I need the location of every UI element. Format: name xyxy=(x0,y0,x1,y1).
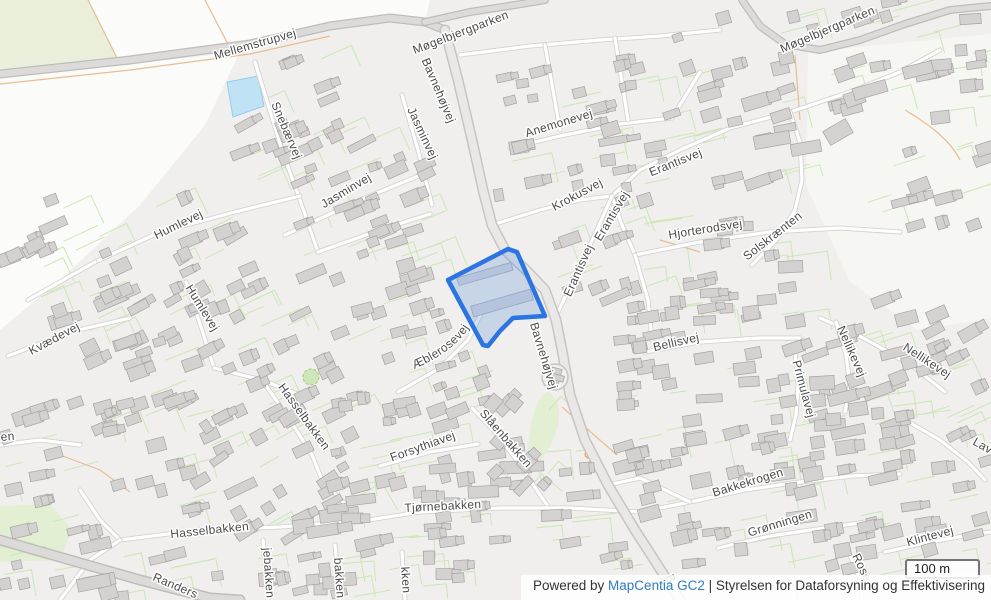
powered-by-text: Powered by xyxy=(533,578,608,593)
building xyxy=(785,314,806,329)
building xyxy=(468,485,499,498)
street-label: bakken xyxy=(331,557,348,598)
building xyxy=(734,542,748,556)
building xyxy=(833,542,851,558)
building xyxy=(771,414,783,424)
building xyxy=(745,346,762,360)
scale-bar-label: 100 m xyxy=(914,561,950,576)
building xyxy=(930,110,950,125)
building xyxy=(211,570,223,581)
building xyxy=(600,154,616,167)
building xyxy=(810,435,825,449)
attribution-bar: Powered by MapCentia GC2 | Styrelsen for… xyxy=(521,575,991,600)
building xyxy=(625,80,637,90)
building xyxy=(848,401,868,417)
building xyxy=(778,374,790,386)
street-label: en xyxy=(0,429,15,444)
building xyxy=(617,399,635,411)
map-canvas[interactable]: MellemstrupvejMøgelbjergparkenMøgelbjerg… xyxy=(0,0,991,600)
building xyxy=(757,294,776,306)
building xyxy=(871,407,884,419)
map-viewport: MellemstrupvejMøgelbjergparkenMøgelbjerg… xyxy=(0,0,991,600)
mapcentia-link[interactable]: MapCentia GC2 xyxy=(608,578,705,593)
street-label: kken xyxy=(398,566,414,593)
building xyxy=(778,281,797,293)
building xyxy=(338,400,352,412)
building xyxy=(696,394,722,403)
building xyxy=(633,340,647,354)
building xyxy=(306,574,320,585)
building xyxy=(739,376,760,387)
building xyxy=(620,560,632,570)
building xyxy=(810,451,825,462)
building xyxy=(682,414,702,428)
building xyxy=(779,395,797,409)
building xyxy=(693,315,715,325)
building xyxy=(0,577,12,590)
building xyxy=(879,437,896,451)
building xyxy=(318,563,331,578)
building xyxy=(429,463,456,474)
building xyxy=(275,571,291,586)
attribution-org-text: Styrelsen for Dataforsyning og Effektivi… xyxy=(716,578,985,593)
building xyxy=(11,560,22,571)
building xyxy=(778,260,803,273)
building xyxy=(18,578,31,590)
building xyxy=(733,361,756,375)
attribution-separator: | xyxy=(705,578,716,593)
building xyxy=(665,306,680,321)
green-roundabout xyxy=(303,369,319,385)
building xyxy=(826,413,841,426)
building xyxy=(493,188,504,201)
building xyxy=(652,364,670,380)
building xyxy=(955,44,967,56)
building xyxy=(559,468,572,477)
building xyxy=(423,551,434,565)
building xyxy=(452,573,464,583)
building xyxy=(787,10,800,24)
building xyxy=(527,94,538,103)
building xyxy=(516,78,529,88)
building xyxy=(959,13,981,25)
building xyxy=(809,375,834,390)
building xyxy=(742,305,760,321)
